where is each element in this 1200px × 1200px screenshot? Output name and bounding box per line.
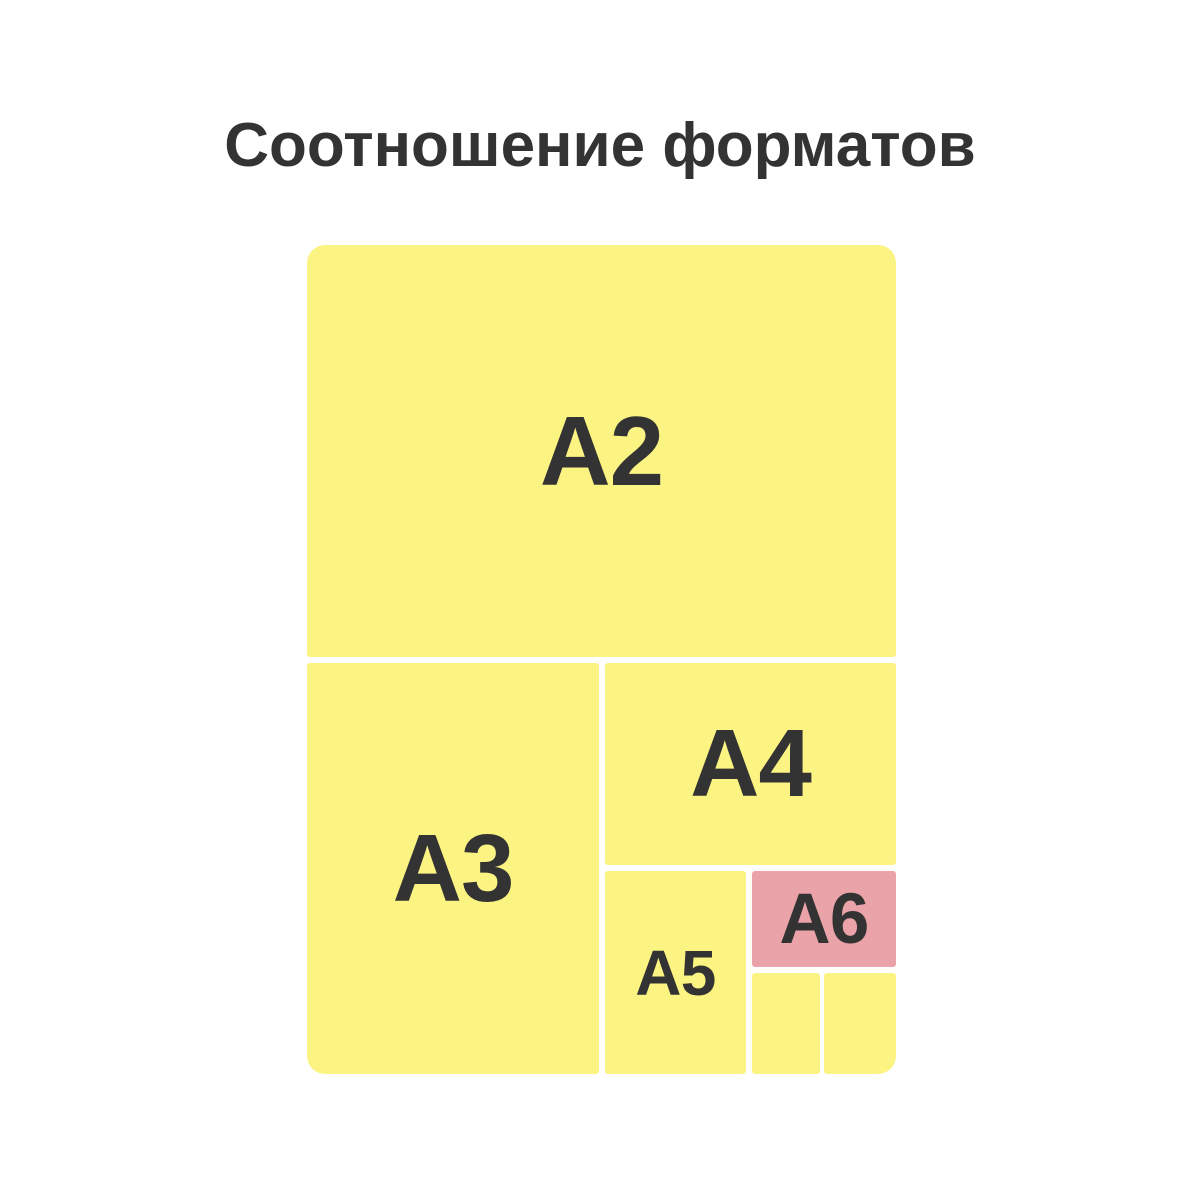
format-a2-sheet: A2 xyxy=(307,245,896,657)
format-a8-sheet-unlabeled xyxy=(824,973,896,1074)
format-a5-label: A5 xyxy=(635,941,716,1005)
format-a6-label: A6 xyxy=(779,884,868,955)
format-a2-label: A2 xyxy=(540,402,663,500)
paper-format-diagram: A2 A3 A4 A5 A6 xyxy=(307,245,896,1074)
page-title: Соотношение форматов xyxy=(0,112,1200,180)
infographic-canvas: Соотношение форматов A2 A3 A4 A5 A6 xyxy=(0,0,1200,1200)
format-a4-sheet: A4 xyxy=(605,663,896,865)
format-a3-sheet: A3 xyxy=(307,663,599,1074)
format-a3-label: A3 xyxy=(393,821,514,917)
format-a4-label: A4 xyxy=(690,716,811,812)
format-a6-sheet-highlighted: A6 xyxy=(752,871,896,967)
format-a7-sheet-unlabeled xyxy=(752,973,820,1074)
format-a5-sheet: A5 xyxy=(605,871,746,1074)
